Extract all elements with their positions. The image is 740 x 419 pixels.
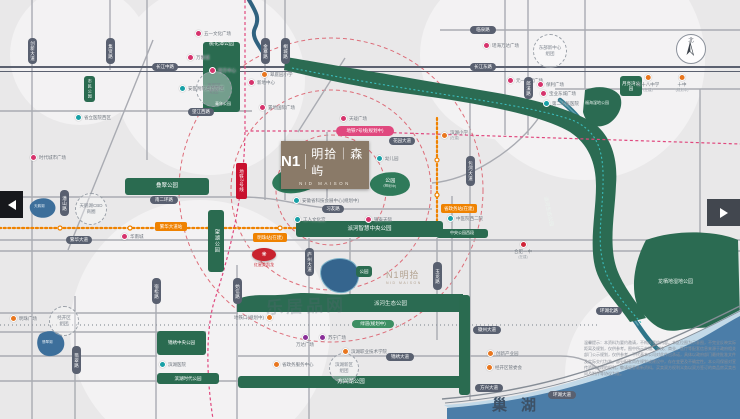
poi-dot <box>248 79 255 86</box>
poi-dot <box>507 77 514 84</box>
district-bubble: 天鹅湖CBD商圈 <box>75 193 107 225</box>
poi-marker: 滨湖医院 <box>159 361 186 368</box>
road-label-pill: 环湖大道 <box>548 391 576 399</box>
district-bubble: 经开区组团 <box>49 306 79 336</box>
metro-station-label: 明珠站(在建) <box>253 233 287 242</box>
poi-marker: 省政务服务中心 <box>273 361 314 368</box>
poi-marker: 第二人民医院 <box>543 100 579 107</box>
logo-monogram: N1 <box>281 154 306 169</box>
poi-marker: 保利广场 <box>537 81 564 88</box>
road-name: 宿松路 <box>154 284 160 299</box>
poi-label: 第二人民医院 <box>552 101 579 106</box>
poi-dot <box>259 104 266 111</box>
road-label-pill-vertical: 始信路 <box>233 278 242 304</box>
poi-label: 新地中心 <box>257 80 275 85</box>
poi-marker: 翠庭园小学 <box>261 71 293 78</box>
compass-icon: 北 <box>676 34 706 64</box>
park: 锦绣中央公园 <box>157 331 206 355</box>
road-name: 创新大道 <box>30 41 36 61</box>
road-name: 包河大道 <box>468 161 474 181</box>
poi-label: 安医附院高新院区 <box>188 86 224 91</box>
metro-line7-label: 地铁7号线(规划中) <box>336 126 394 136</box>
poi-marker: 万达广场 <box>296 334 314 347</box>
road-label-pill-vertical: 玉龙路 <box>433 262 442 290</box>
road-label-pill-vertical: 包河大道 <box>466 156 475 186</box>
poi-label: 工人文化宫 <box>303 217 326 222</box>
park: 叠翠公园 <box>125 178 209 195</box>
poi-marker: 瑶海万达广场 <box>483 42 519 49</box>
poi-label: 宝业东城广场 <box>549 91 576 96</box>
poi-label: 滨湖医院 <box>168 362 186 367</box>
park-label: 叠翠公园 <box>156 183 178 189</box>
prev-map-button[interactable] <box>0 191 23 218</box>
park-blob-status: (规划中) <box>383 184 396 189</box>
poi-label: 幼儿园 <box>385 156 399 161</box>
park-label: 望湖公园 <box>213 229 219 253</box>
logo-name: 明拾｜森屿 <box>311 145 369 179</box>
poi-label: 滨湖小学(在建) <box>450 130 468 141</box>
district-bubble: 东部新中心组团 <box>533 34 567 68</box>
poi-label: 华南城 <box>130 234 144 239</box>
poi-dot <box>195 30 202 37</box>
poi-dot <box>261 71 268 78</box>
road-label-pill: 临泉路 <box>470 26 496 34</box>
poi-dot <box>319 334 326 341</box>
disclaimer-text: 温馨提示：本资料为要约邀请，不构成要约内容。本区位图为示意图，不完全反映实际距离… <box>584 340 736 386</box>
mall-badge-icon: ❋ <box>252 248 276 261</box>
project-watermark-sub: NID MAISON <box>386 281 422 285</box>
park-label: 桃花潭公园 <box>209 42 234 48</box>
poi-label: 省立医院西区 <box>84 115 111 120</box>
logo-subtitle: NID MAISON <box>299 181 351 186</box>
road-label-pill: 绿道(规划中) <box>352 320 394 328</box>
road-name: 翡翠路 <box>74 353 80 368</box>
road-name: 始信路 <box>235 284 241 299</box>
road-label-pill-vertical: 金寨路 <box>261 38 270 64</box>
mall-badge: ❋ 红星美凯龙 <box>252 248 276 268</box>
poi-dot <box>10 315 17 322</box>
road-label-pill: 长江中路 <box>152 63 178 71</box>
poi-marker: 合肥一中(在建) <box>514 241 532 260</box>
poi-label: 五一文化广场 <box>204 31 231 36</box>
road-label-pill: 南二环路 <box>150 196 178 204</box>
road-label-pill-vertical: 潜山路 <box>60 190 69 216</box>
poi-dot <box>645 74 652 81</box>
park <box>459 295 470 395</box>
park: 中央公园西段 <box>436 229 488 238</box>
poi-dot <box>121 233 128 240</box>
poi-marker: 万象城 <box>187 54 210 61</box>
district-suffix: 组团 <box>546 51 555 57</box>
poi-label: 地铁口(规划中) <box>234 315 264 320</box>
lake-label: 翡翠湖 <box>42 340 53 345</box>
poi-marker: 创新产业园 <box>487 350 519 357</box>
poi-dot <box>483 42 490 49</box>
poi-label: 三十八中学(在建) <box>637 82 660 93</box>
poi-label: 安徽省科技会展中心(规划中) <box>302 198 359 203</box>
poi-marker: 幼儿园 <box>376 155 399 162</box>
poi-label: 天珑广场 <box>349 116 367 121</box>
left-arrow-icon <box>8 200 16 210</box>
poi-sublabel: (在建) <box>518 255 527 259</box>
road-label-pill: 繁华大道 <box>66 236 92 244</box>
road-name: 潜山路 <box>62 196 68 211</box>
project-watermark-name: N1明拾 <box>386 268 422 281</box>
poi-dot <box>486 364 493 371</box>
poi-label: 合肥一中(在建) <box>514 249 532 260</box>
poi-marker: 中医院西二院 <box>447 215 483 222</box>
poi-label: 十中(规划中) <box>676 82 689 93</box>
chao-lake-label: 巢湖 <box>492 394 550 415</box>
poi-label: 悦方中心 <box>218 68 236 73</box>
poi-label: 明珠广场 <box>19 316 37 321</box>
park-label: 福海湿地公园 <box>585 100 609 106</box>
poi-sublabel: (规划中) <box>676 88 689 92</box>
park-label: 公园 <box>360 269 369 274</box>
road-label-pill: 花园大道 <box>389 137 415 145</box>
district-suffix: 组团 <box>60 321 69 327</box>
poi-marker: 安医附院高新院区 <box>179 85 224 92</box>
road-label-pill: 徽州大道 <box>473 326 501 334</box>
poi-dot <box>209 67 216 74</box>
poi-marker: 天珑广场 <box>340 115 367 122</box>
poi-dot <box>273 361 280 368</box>
poi-marker: 新地中心 <box>248 79 275 86</box>
road-name: 玉龙路 <box>435 269 441 284</box>
poi-label: 万达广场 <box>296 342 314 347</box>
poi-dot <box>447 215 454 222</box>
road-label-pill-vertical: 宿松路 <box>152 278 161 304</box>
park: 市民公园 <box>84 76 95 102</box>
poi-marker: 滨湖职业技术学院 <box>342 348 387 355</box>
poi-dot <box>179 85 186 92</box>
poi-label: 滨湖职业技术学院 <box>351 349 387 354</box>
poi-dot <box>187 54 194 61</box>
road-label-pill: 长江东路 <box>470 63 496 71</box>
poi-label: 中医院西二院 <box>456 216 483 221</box>
poi-label: 创新产业园 <box>496 351 519 356</box>
project-watermark: N1明拾 NID MAISON <box>386 268 422 285</box>
poi-marker: 滨湖小学(在建) <box>441 130 468 141</box>
poi-label: 翠庭园小学 <box>270 72 293 77</box>
poi-dot <box>543 100 550 107</box>
poi-dot <box>159 361 166 368</box>
road-label-pill-vertical: 创新大道 <box>28 38 37 64</box>
mall-badge-label: 红星美凯龙 <box>252 262 276 268</box>
next-map-button[interactable] <box>707 199 740 226</box>
park: 滨湖时代公园 <box>157 373 219 384</box>
road-label-pill: 环湖北路 <box>596 307 622 315</box>
site-watermark: 乐居品网 <box>266 291 347 319</box>
park: 派河智慧中央公园 <box>296 221 443 237</box>
park-label: 市民公园 <box>87 79 92 99</box>
poi-label: 万象城 <box>196 55 210 60</box>
road-label-pill-vertical: 集贤路 <box>106 38 115 64</box>
poi-dot <box>537 81 544 88</box>
poi-marker: 五一文化广场 <box>195 30 231 37</box>
poi-dot <box>540 90 547 97</box>
poi-dot <box>441 132 448 139</box>
park: 望湖公园 <box>208 210 224 272</box>
park-label: 中央公园西段 <box>450 231 474 236</box>
project-logo: N1 明拾｜森屿 NID MAISON <box>281 141 369 189</box>
poi-marker: 宝业东城广场 <box>540 90 576 97</box>
poi-dot <box>342 348 349 355</box>
poi-marker: 明珠广场 <box>10 315 37 322</box>
poi-marker: 省立医院西区 <box>75 114 111 121</box>
park-label: 派河智慧中央公园 <box>347 226 391 232</box>
park: 公园 <box>356 266 372 277</box>
poi-dot <box>520 241 527 248</box>
road-label-pill: 方兴大道 <box>475 384 503 392</box>
poi-marker: 时代城市广场 <box>30 154 66 161</box>
poi-dot <box>679 74 686 81</box>
road-label-pill-vertical: 郎溪路 <box>524 77 533 99</box>
poi-marker: 经开区管委会 <box>486 364 522 371</box>
right-arrow-icon <box>720 208 728 218</box>
road-label-pill-vertical: 桐城路 <box>281 38 290 64</box>
park-label: 滨湖时代公园 <box>175 376 202 381</box>
road-label-pill: 锦绣大道 <box>386 353 414 361</box>
poi-label: 保利广场 <box>546 82 564 87</box>
park-label: 龙栖地湿地公园 <box>658 278 693 285</box>
poi-dot <box>75 114 82 121</box>
road-name: 庐州大道 <box>307 252 313 272</box>
poi-dot <box>487 350 494 357</box>
poi-marker: 三十八中学(在建) <box>637 74 660 93</box>
poi-dot <box>376 155 383 162</box>
poi-marker: 华南城 <box>121 233 144 240</box>
metro-station-label: 省政务站(在建) <box>441 204 477 213</box>
poi-label: 省政务服务中心 <box>282 362 314 367</box>
poi-dot <box>30 154 37 161</box>
poi-marker: 银泰天际 <box>365 216 392 223</box>
district-suffix: 商圈 <box>87 209 96 215</box>
poi-dot <box>302 334 309 341</box>
road-label-pill-vertical: 翡翠路 <box>72 346 81 374</box>
road-name: 金寨路 <box>263 44 269 59</box>
poi-label: 银泰天际 <box>374 217 392 222</box>
poi-marker: 十中(规划中) <box>676 74 689 93</box>
road-name: 郎溪路 <box>526 81 532 96</box>
district-suffix: 组团 <box>340 368 349 374</box>
poi-label: 时代城市广场 <box>39 155 66 160</box>
poi-dot <box>294 216 301 223</box>
metro-line3-label: 地铁3号线 <box>236 163 247 199</box>
road-label-pill-vertical: 庐州大道 <box>305 248 314 276</box>
road-label-pill: 望江西路 <box>188 108 214 116</box>
poi-dot <box>340 115 347 122</box>
road-name: 集贤路 <box>108 44 114 59</box>
poi-sublabel: (在建) <box>643 88 652 92</box>
lake-label: 天鹅湖 <box>34 204 45 209</box>
poi-dot <box>365 216 372 223</box>
poi-label: 置地国际广场 <box>268 105 295 110</box>
road-label-pill: 习友路 <box>322 205 344 213</box>
district-bubble: 滨湖新区组团 <box>329 353 359 383</box>
poi-dot <box>293 197 300 204</box>
poi-marker: 悦方中心 <box>209 67 236 74</box>
park-label: 派河生态公园 <box>374 299 407 307</box>
poi-label: 经开区管委会 <box>495 365 522 370</box>
poi-marker: 置地国际广场 <box>259 104 295 111</box>
poi-marker: 安徽省科技会展中心(规划中) <box>293 197 359 204</box>
location-map: N1 明拾｜森屿 NID MAISON ❋ 红星美凯龙 地铁3号线 地铁7号线(… <box>0 0 740 419</box>
poi-sublabel: (在建) <box>450 136 459 140</box>
poi-label: 瑶海万达广场 <box>492 43 519 48</box>
poi-label: 苏宁广场 <box>328 335 346 340</box>
poi-marker: 苏宁广场 <box>319 334 346 341</box>
poi-marker: 工人文化宫 <box>294 216 326 223</box>
metro-station-label: 繁华大道站 <box>155 222 187 231</box>
road-name: 桐城路 <box>283 44 289 59</box>
park-label: 锦绣中央公园 <box>168 340 195 345</box>
